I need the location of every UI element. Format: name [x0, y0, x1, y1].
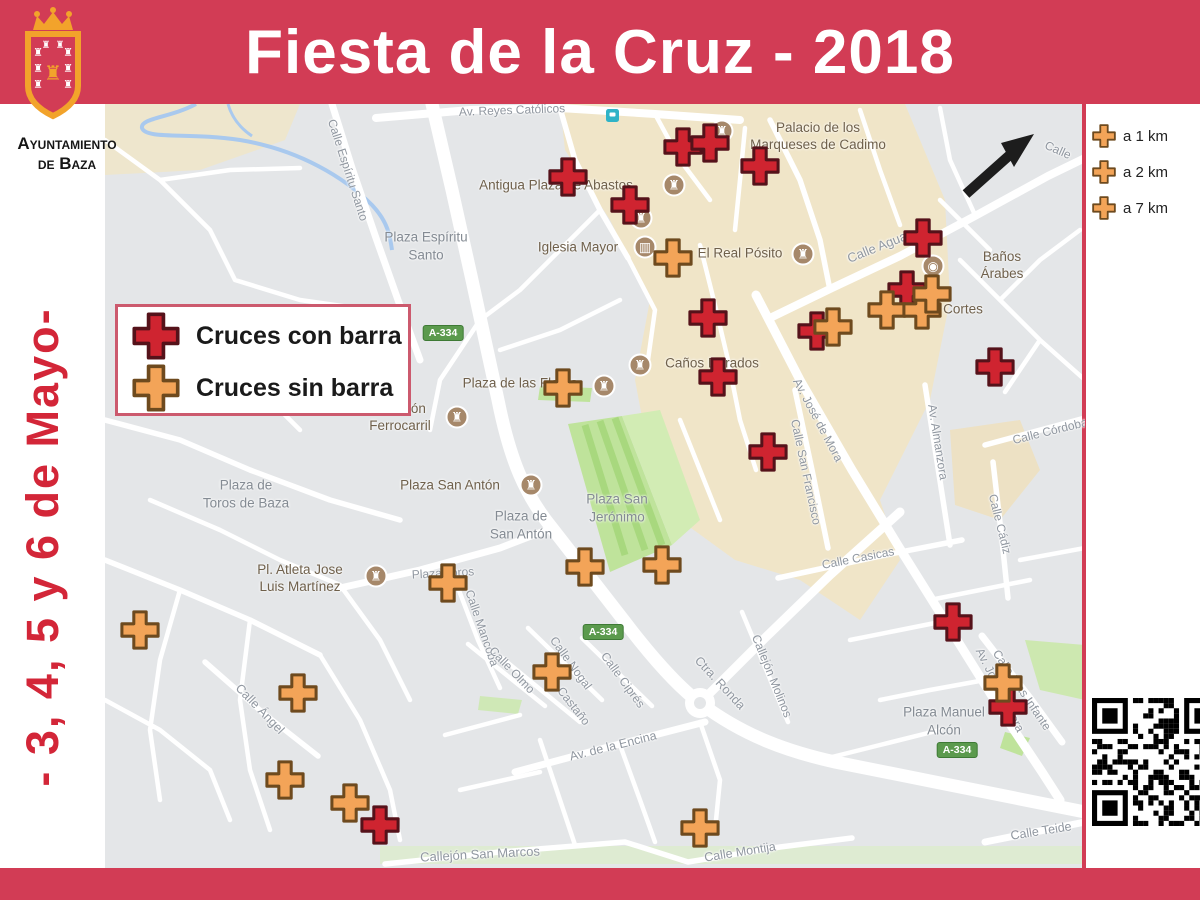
svg-text:♜: ♜: [63, 63, 73, 75]
cross-marker-orange[interactable]: [867, 290, 907, 330]
cross-marker-red[interactable]: [688, 298, 728, 338]
svg-text:♜: ♜: [63, 79, 73, 91]
poi-label: El Real Pósito: [698, 246, 783, 263]
svg-text:♜: ♜: [63, 47, 73, 59]
poster-page: Fiesta de la Cruz - 2018 ♜ ♜ ♜ ♜ ♜ ♜ ♜ ♜…: [0, 0, 1200, 900]
plaza-label: Plaza Espíritu Santo: [384, 228, 467, 263]
cross-marker-orange[interactable]: [680, 808, 720, 848]
orange-cross-icon: [1092, 124, 1116, 148]
qr-code: [1092, 698, 1200, 826]
legend-label: Cruces sin barra: [196, 374, 393, 403]
poi-icon[interactable]: ♜: [446, 406, 469, 429]
red-cross-icon: [132, 312, 180, 360]
plaza-label: Plaza de San Antón: [490, 507, 552, 542]
cross-marker-orange[interactable]: [428, 563, 468, 603]
cross-marker-red[interactable]: [698, 357, 738, 397]
cross-marker-red[interactable]: [975, 347, 1015, 387]
org-name-line1: Ayuntamiento: [17, 134, 116, 153]
distance-label: a 2 km: [1123, 164, 1168, 181]
cross-marker-orange[interactable]: [813, 307, 853, 347]
cross-marker-orange[interactable]: [565, 547, 605, 587]
cross-marker-orange[interactable]: [532, 652, 572, 692]
svg-text:♜: ♜: [33, 63, 43, 75]
poi-label: Plaza San Antón: [400, 478, 500, 495]
cross-marker-orange[interactable]: [278, 673, 318, 713]
cross-marker-orange[interactable]: [912, 274, 952, 314]
orange-cross-icon: [1092, 160, 1116, 184]
legend-box: Cruces con barra Cruces sin barra: [115, 304, 411, 416]
svg-text:♜: ♜: [44, 63, 62, 85]
cross-marker-red[interactable]: [903, 218, 943, 258]
cross-marker-red[interactable]: [933, 602, 973, 642]
cross-marker-orange[interactable]: [330, 783, 370, 823]
transit-stop-icon: [606, 109, 619, 122]
cross-marker-red[interactable]: [610, 185, 650, 225]
svg-text:♜: ♜: [33, 79, 43, 91]
distance-item-1km: a 1 km: [1092, 118, 1168, 154]
cross-marker-orange[interactable]: [653, 238, 693, 278]
distance-item-7km: a 7 km: [1092, 190, 1168, 226]
cross-marker-orange[interactable]: [543, 368, 583, 408]
baza-coat-of-arms-icon: ♜ ♜ ♜ ♜ ♜ ♜ ♜ ♜ ♜: [20, 4, 86, 135]
cross-marker-red[interactable]: [690, 123, 730, 163]
cross-marker-orange[interactable]: [265, 760, 305, 800]
poi-label: Pl. Atleta Jose Luis Martínez: [257, 562, 343, 596]
poi-icon[interactable]: ♜: [629, 354, 652, 377]
distance-label: a 7 km: [1123, 200, 1168, 217]
poi-icon[interactable]: ♜: [520, 474, 543, 497]
poi-icon[interactable]: ♜: [663, 174, 686, 197]
bottom-banner: [0, 868, 1200, 900]
plaza-label: Plaza San Jerónimo: [586, 490, 648, 525]
legend-label: Cruces con barra: [196, 322, 402, 351]
org-name-line2: de Baza: [38, 154, 96, 173]
svg-text:♜: ♜: [56, 40, 65, 51]
poi-label: Baños Árabes: [961, 249, 1044, 283]
legend-item-con-barra: Cruces con barra: [132, 311, 402, 361]
page-title: Fiesta de la Cruz - 2018: [245, 17, 955, 88]
poi-icon[interactable]: ♜: [792, 243, 815, 266]
map[interactable]: Av. Reyes CatólicosCalle Espíritu SantoC…: [105, 104, 1085, 868]
plaza-label: Plaza de Toros de Baza: [203, 476, 289, 511]
cross-marker-orange[interactable]: [983, 663, 1023, 703]
orange-cross-icon: [1092, 196, 1116, 220]
cross-marker-red[interactable]: [740, 146, 780, 186]
event-dates: - 3, 4, 5 y 6 de Mayo-: [17, 227, 67, 867]
orange-cross-icon: [132, 364, 180, 412]
distance-label: a 1 km: [1123, 128, 1168, 145]
plaza-label: Plaza Manuel Alcón: [903, 703, 985, 738]
cross-marker-red[interactable]: [748, 432, 788, 472]
road-shield-a334: A-334: [423, 325, 464, 341]
legend-item-sin-barra: Cruces sin barra: [132, 363, 393, 413]
distance-item-2km: a 2 km: [1092, 154, 1168, 190]
title-banner: Fiesta de la Cruz - 2018: [0, 0, 1200, 104]
road-shield-a334: A-334: [937, 742, 978, 758]
road-shield-a334: A-334: [583, 624, 624, 640]
cross-marker-orange[interactable]: [642, 545, 682, 585]
cross-marker-red[interactable]: [548, 157, 588, 197]
poi-label: Iglesia Mayor: [538, 240, 618, 257]
org-name: Ayuntamiento de Baza: [0, 134, 140, 175]
map-right-border: [1082, 104, 1086, 868]
poi-icon[interactable]: ♜: [365, 565, 388, 588]
cross-marker-orange[interactable]: [120, 610, 160, 650]
distance-legend: a 1 km a 2 km a 7 km: [1092, 118, 1168, 226]
poi-icon[interactable]: ♜: [593, 375, 616, 398]
svg-text:♜: ♜: [42, 40, 51, 51]
